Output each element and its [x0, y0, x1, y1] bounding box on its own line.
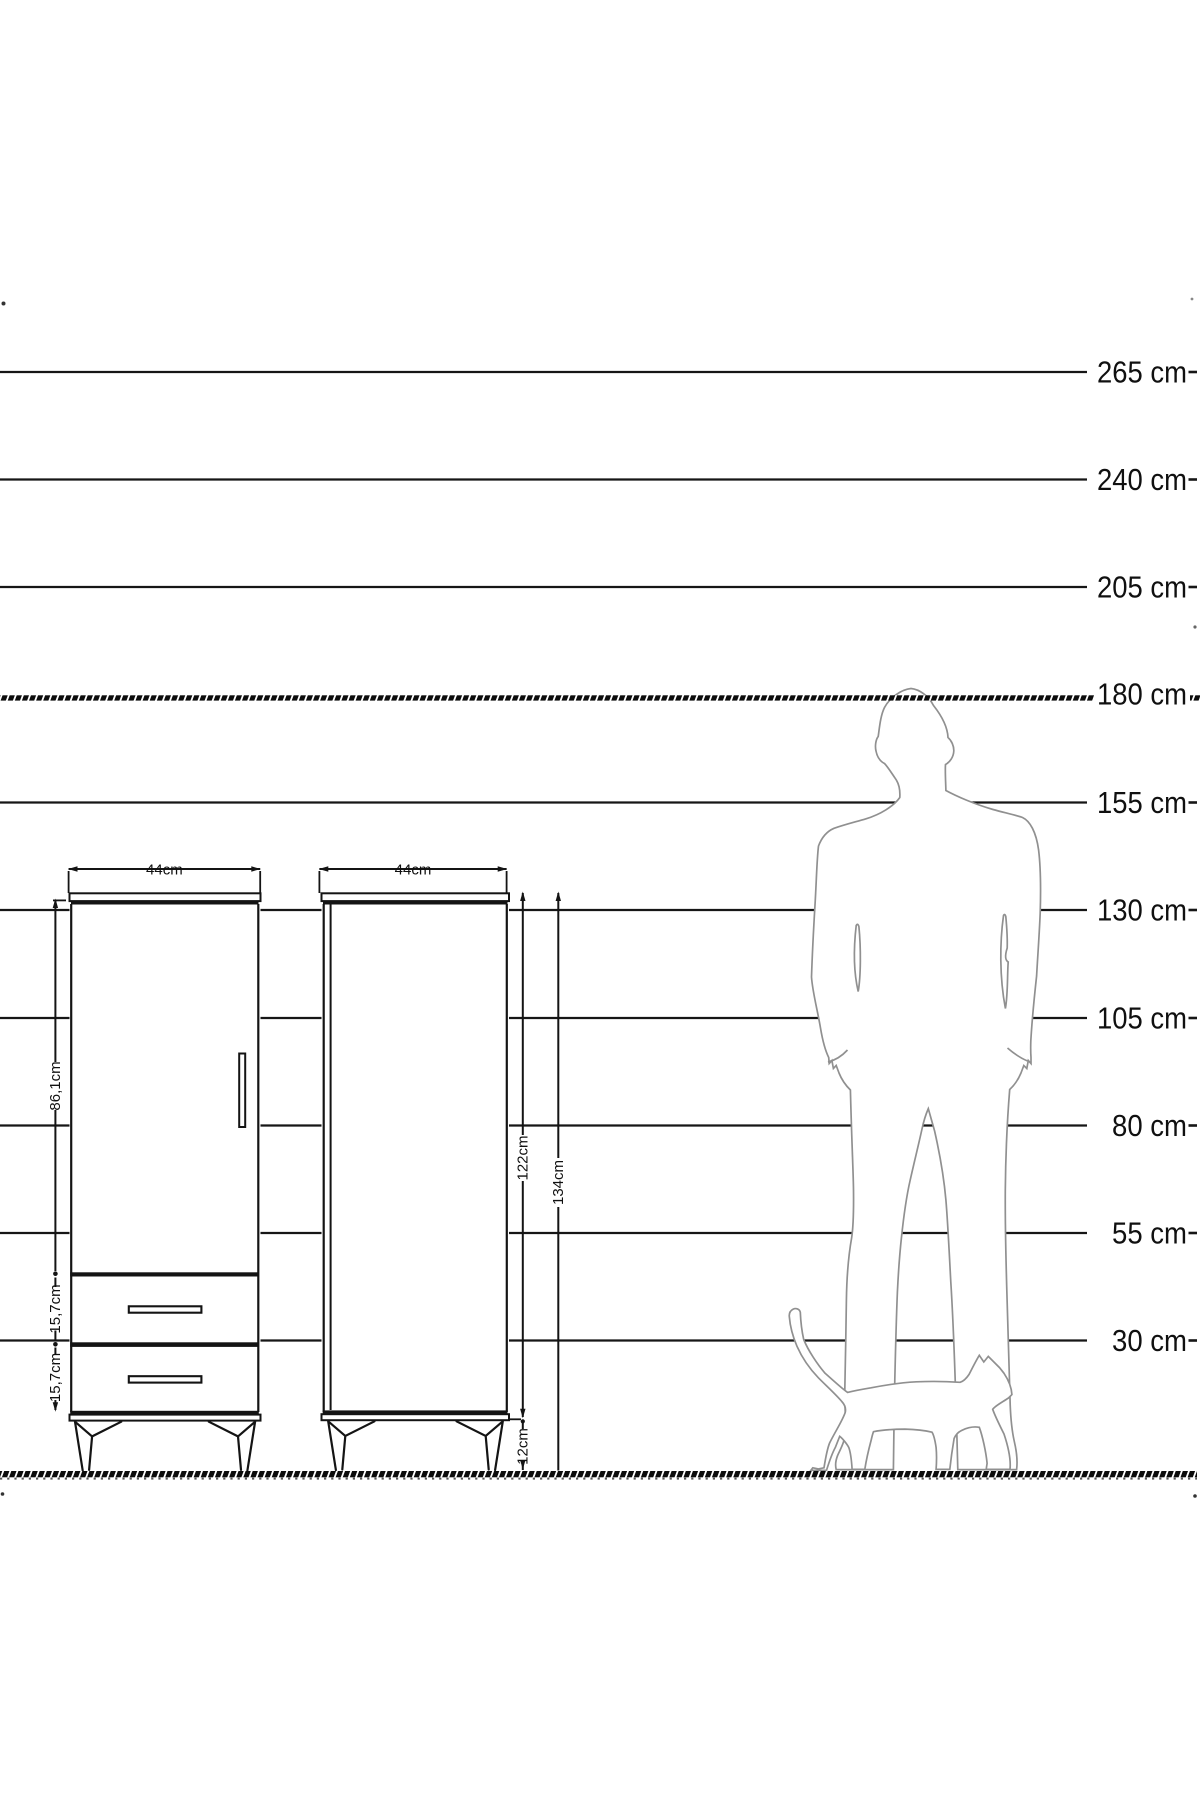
svg-text:44cm: 44cm — [146, 861, 183, 878]
svg-text:86,1cm: 86,1cm — [47, 1061, 64, 1110]
svg-text:55 cm: 55 cm — [1112, 1217, 1187, 1251]
svg-text:105 cm: 105 cm — [1097, 1002, 1187, 1036]
svg-text:205 cm: 205 cm — [1097, 571, 1187, 605]
svg-text:12cm: 12cm — [515, 1428, 532, 1465]
svg-text:44cm: 44cm — [395, 861, 432, 878]
svg-text:130 cm: 130 cm — [1097, 894, 1187, 928]
svg-text:30 cm: 30 cm — [1112, 1324, 1187, 1358]
svg-text:122cm: 122cm — [515, 1135, 532, 1180]
svg-text:180 cm: 180 cm — [1097, 678, 1187, 712]
svg-text:265 cm: 265 cm — [1097, 356, 1187, 390]
svg-text:80 cm: 80 cm — [1112, 1109, 1187, 1143]
svg-text:155 cm: 155 cm — [1097, 786, 1187, 820]
svg-text:240 cm: 240 cm — [1097, 463, 1187, 497]
svg-text:134cm: 134cm — [550, 1160, 567, 1205]
svg-text:15,7cm: 15,7cm — [47, 1284, 64, 1333]
svg-text:15,7cm: 15,7cm — [47, 1353, 64, 1402]
